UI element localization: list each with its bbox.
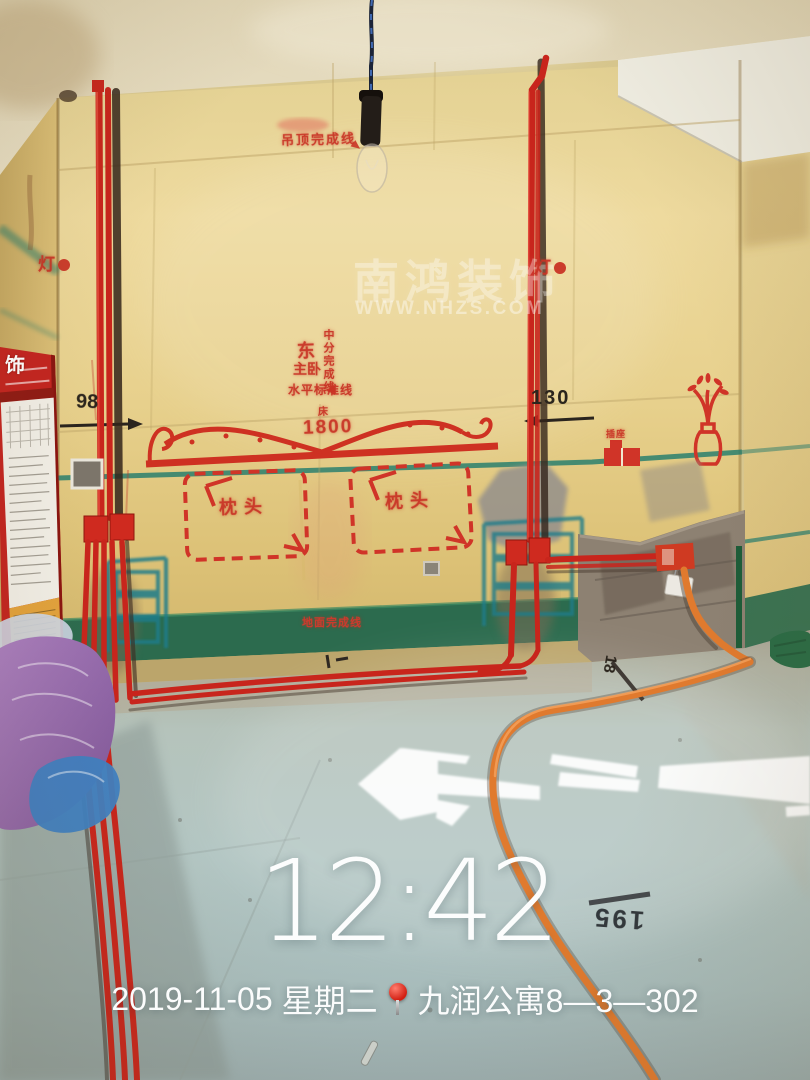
- pin-ball: [389, 983, 407, 1001]
- spray-center-split-label: 中分完成线: [322, 329, 333, 381]
- spray-bed-width-label: 1800: [303, 417, 354, 438]
- spray-east-label: 东: [297, 342, 316, 361]
- spray-ceiling-line-label: 吊顶完成线: [281, 132, 356, 147]
- location-pin-icon: [389, 983, 407, 1015]
- marker-dim-right: 130: [531, 388, 570, 408]
- pin-stem: [396, 1000, 399, 1015]
- spray-lamp-left-label: 灯: [38, 256, 70, 273]
- timestamp-row: 2019-11-05 星期二 九润公寓8—3—302: [0, 976, 810, 1022]
- marker-dim-floor-small: 18: [599, 654, 618, 674]
- spray-floor-line-label: 地面完成线: [302, 618, 362, 629]
- spray-master-bedroom-label: 主卧: [293, 362, 321, 376]
- lamp-right-text: 灯: [534, 258, 551, 277]
- spray-socket-label: 插座: [606, 430, 626, 439]
- marker-dim-left: 98: [76, 392, 99, 413]
- lamp-left-dot-icon: [58, 259, 70, 271]
- corner-junction-box: [655, 543, 695, 572]
- spray-pillow-right-label: 枕头: [385, 491, 436, 512]
- sign-board-brand-char: 饰: [5, 349, 26, 378]
- construction-site-photo: 南鸿装饰 WWW.NHZS.COM 吊顶完成线 灯 灯 中分完成线 东 主卧 水…: [0, 0, 810, 1080]
- timestamp-time: 12:42: [258, 846, 556, 958]
- spray-lamp-right-label: 灯: [534, 259, 566, 276]
- lamp-right-dot-icon: [554, 262, 566, 274]
- spray-pillow-left-label: 枕头: [219, 497, 270, 517]
- spray-level-line-label: 水平标准线: [288, 384, 353, 396]
- lamp-left-text: 灯: [38, 255, 55, 274]
- watermark-url: WWW.NHZS.COM: [355, 298, 544, 320]
- marker-dim-floor-rotated: 195: [591, 904, 645, 934]
- timestamp-location: 九润公寓8—3—302: [418, 976, 699, 1022]
- timestamp-date: 2019-11-05: [111, 981, 272, 1018]
- timestamp-weekday: 星期二: [282, 976, 378, 1022]
